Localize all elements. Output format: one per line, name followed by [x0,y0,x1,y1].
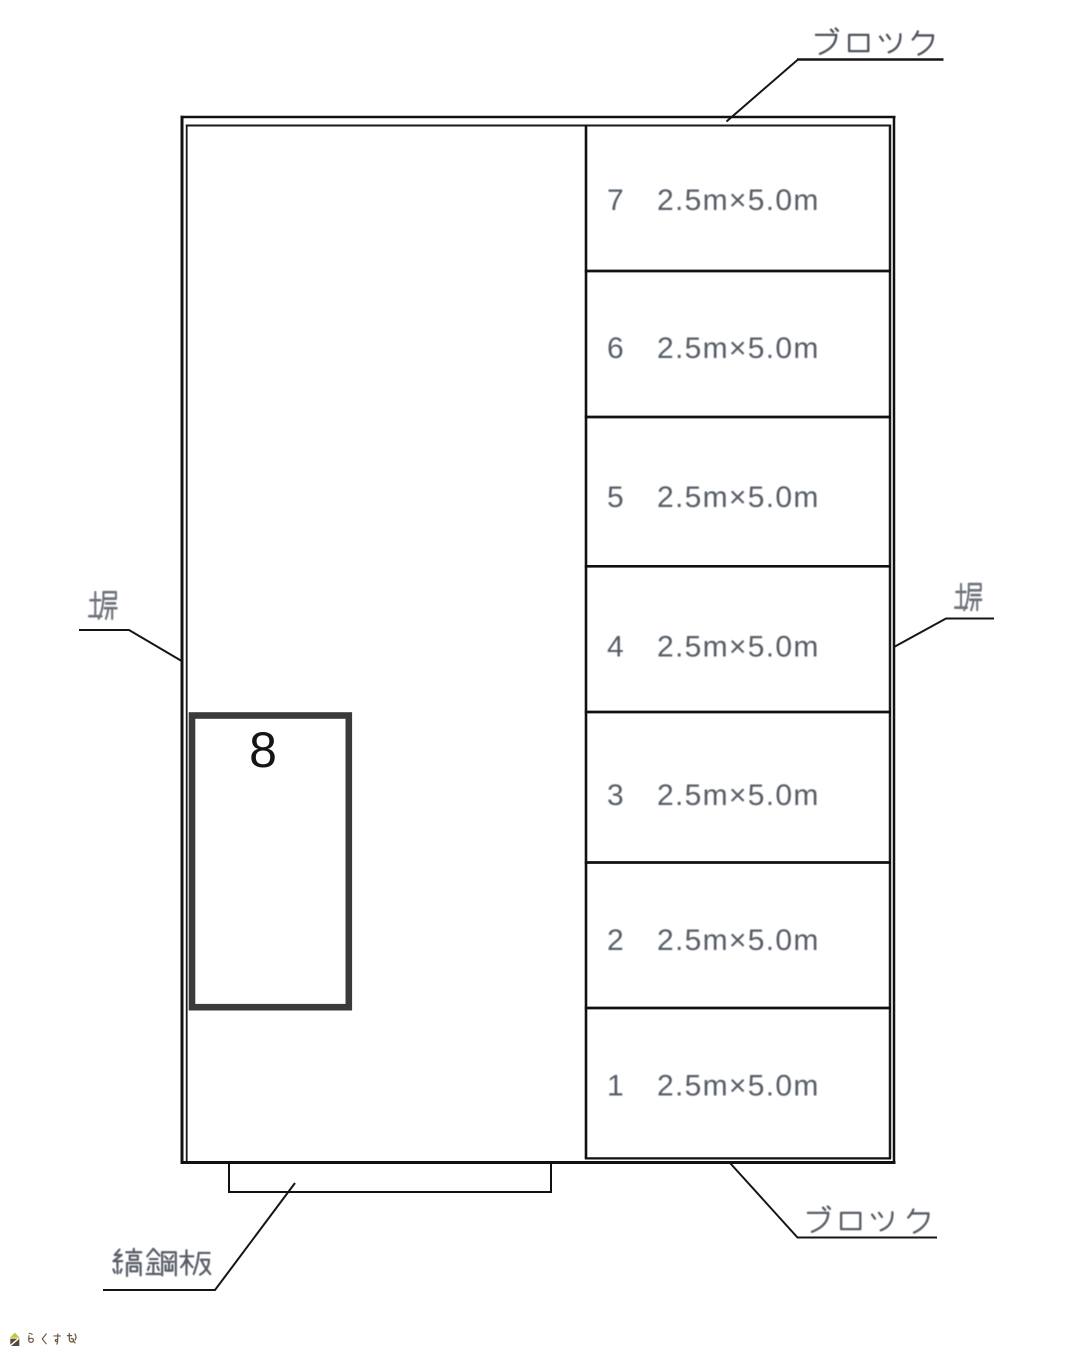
svg-text:2: 2 [607,924,625,957]
svg-text:2.5m×5.0m: 2.5m×5.0m [657,481,820,514]
svg-text:4: 4 [607,631,625,664]
svg-text:6: 6 [607,332,625,365]
svg-text:8: 8 [249,722,277,778]
svg-text:3: 3 [607,779,625,812]
svg-text:5: 5 [607,481,625,514]
svg-text:2.5m×5.0m: 2.5m×5.0m [657,332,820,365]
svg-text:2.5m×5.0m: 2.5m×5.0m [657,779,820,812]
svg-text:1: 1 [607,1070,625,1103]
svg-text:2.5m×5.0m: 2.5m×5.0m [657,1070,820,1103]
svg-text:2.5m×5.0m: 2.5m×5.0m [657,631,820,664]
svg-text:7: 7 [607,184,625,217]
svg-text:2.5m×5.0m: 2.5m×5.0m [657,184,820,217]
svg-text:2.5m×5.0m: 2.5m×5.0m [657,924,820,957]
